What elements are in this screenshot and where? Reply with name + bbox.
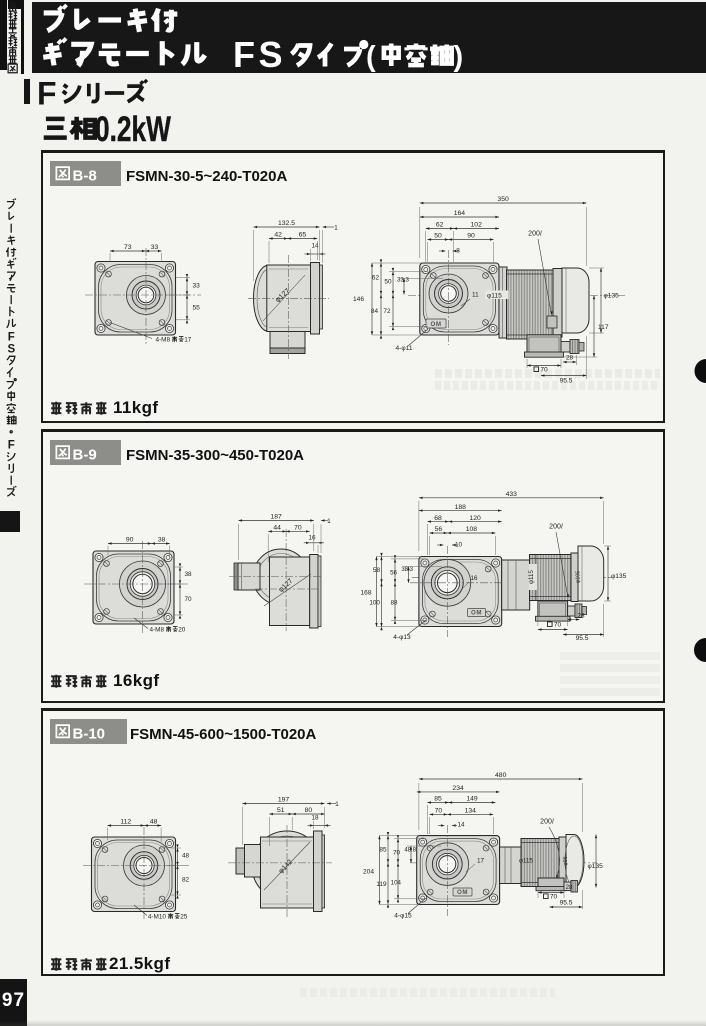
svg-text:70: 70 <box>435 808 443 815</box>
svg-text:70: 70 <box>550 894 558 901</box>
svg-text:11: 11 <box>472 292 479 299</box>
svg-text:1: 1 <box>335 801 339 808</box>
svg-text:200l: 200l <box>540 818 554 826</box>
svg-text:4-M10: 4-M10 <box>148 914 167 921</box>
svg-text:84: 84 <box>371 308 379 315</box>
svg-text:17: 17 <box>184 337 192 344</box>
svg-text:28: 28 <box>566 355 574 362</box>
svg-text:φ115: φ115 <box>487 293 502 300</box>
svg-text:FSMN-35-300~450-T020A: FSMN-35-300~450-T020A <box>126 447 304 464</box>
svg-text:B-8: B-8 <box>73 168 97 185</box>
svg-text:70: 70 <box>294 525 302 532</box>
svg-text:F: F <box>8 332 15 344</box>
svg-text:197: 197 <box>278 797 290 804</box>
svg-text:F: F <box>8 440 15 452</box>
svg-text:50: 50 <box>384 279 392 286</box>
svg-text:51: 51 <box>277 807 285 814</box>
svg-text:70: 70 <box>540 367 548 374</box>
svg-text:70: 70 <box>185 596 193 603</box>
svg-text:4-φ15: 4-φ15 <box>394 913 412 920</box>
svg-text:FSMN-45-600~1500-T020A: FSMN-45-600~1500-T020A <box>130 726 317 743</box>
svg-text:38: 38 <box>185 571 193 578</box>
svg-text:14: 14 <box>311 243 319 250</box>
svg-text:100: 100 <box>369 600 380 607</box>
svg-text:132.5: 132.5 <box>278 220 295 227</box>
svg-text:112: 112 <box>120 819 131 826</box>
svg-text:350: 350 <box>497 196 509 203</box>
svg-text:28: 28 <box>566 885 573 891</box>
svg-text:82: 82 <box>182 877 190 884</box>
svg-text:90: 90 <box>126 537 134 544</box>
svg-text:φ135: φ135 <box>588 863 604 870</box>
svg-text:117: 117 <box>598 324 609 331</box>
svg-text:B-9: B-9 <box>73 447 97 464</box>
svg-text:433: 433 <box>506 491 518 498</box>
svg-text:200l: 200l <box>528 230 542 238</box>
svg-text:OM: OM <box>431 321 442 328</box>
svg-text:33.3: 33.3 <box>397 277 410 284</box>
svg-text:200l: 200l <box>549 523 563 531</box>
svg-text:95.5: 95.5 <box>576 635 589 642</box>
svg-text:FS: FS <box>233 34 286 75</box>
svg-text:48.8: 48.8 <box>404 848 416 854</box>
svg-text:58: 58 <box>373 567 381 574</box>
svg-text:65: 65 <box>299 232 307 239</box>
svg-text:68: 68 <box>434 515 442 522</box>
svg-text:φ135: φ135 <box>611 573 627 580</box>
svg-text:φ105: φ105 <box>576 571 582 584</box>
svg-text:204: 204 <box>363 869 374 876</box>
svg-text:102: 102 <box>471 222 483 229</box>
svg-text:149: 149 <box>466 796 478 803</box>
svg-text:88: 88 <box>391 600 398 607</box>
svg-text:85: 85 <box>379 847 387 854</box>
svg-text:25: 25 <box>180 914 188 921</box>
svg-text:4-M8: 4-M8 <box>155 337 170 344</box>
svg-text:16kgf: 16kgf <box>113 671 159 690</box>
svg-text:44: 44 <box>273 525 281 532</box>
svg-text:20: 20 <box>178 627 186 634</box>
svg-text:80: 80 <box>305 807 313 814</box>
svg-text:168: 168 <box>360 590 371 597</box>
svg-text:φ96: φ96 <box>563 856 569 866</box>
svg-text:OM: OM <box>457 889 468 896</box>
svg-text:11kgf: 11kgf <box>113 398 158 417</box>
svg-text:56: 56 <box>435 526 443 533</box>
svg-text:187: 187 <box>270 514 282 521</box>
svg-text:48: 48 <box>182 853 190 860</box>
svg-text:φ115: φ115 <box>528 570 535 584</box>
svg-text:188: 188 <box>455 504 467 511</box>
svg-text:134: 134 <box>465 808 477 815</box>
svg-text:480: 480 <box>495 772 507 779</box>
svg-text:φ115: φ115 <box>519 858 533 865</box>
svg-text:S: S <box>7 344 15 356</box>
svg-text:21.5kgf: 21.5kgf <box>109 954 170 973</box>
svg-text:φ135: φ135 <box>604 293 620 300</box>
svg-text:38: 38 <box>158 537 166 544</box>
svg-text:16: 16 <box>471 575 478 582</box>
svg-text:B-10: B-10 <box>73 726 106 743</box>
svg-text:108: 108 <box>466 526 478 533</box>
svg-text:62: 62 <box>436 222 444 229</box>
svg-text:119: 119 <box>376 881 387 888</box>
svg-text:1: 1 <box>327 518 331 525</box>
svg-text:62: 62 <box>372 275 380 282</box>
svg-text:FSMN-30-5~240-T020A: FSMN-30-5~240-T020A <box>126 168 287 185</box>
svg-text:17: 17 <box>477 858 485 865</box>
svg-text:16: 16 <box>308 535 316 542</box>
svg-text:4-φ13: 4-φ13 <box>393 634 411 641</box>
svg-text:38.3: 38.3 <box>401 567 413 573</box>
svg-text:55: 55 <box>193 305 201 312</box>
svg-text:73: 73 <box>124 244 132 251</box>
svg-text:1: 1 <box>334 225 338 232</box>
svg-text:90: 90 <box>467 233 475 240</box>
svg-text:(: ( <box>366 41 376 73</box>
svg-text:18: 18 <box>311 815 319 822</box>
svg-text:120: 120 <box>469 515 481 522</box>
svg-text:28: 28 <box>577 613 585 620</box>
svg-text:72: 72 <box>383 308 391 315</box>
svg-text:95.5: 95.5 <box>560 900 573 907</box>
svg-text:33: 33 <box>193 283 201 290</box>
svg-text:4-φ11: 4-φ11 <box>396 345 413 352</box>
svg-text:48: 48 <box>150 819 158 826</box>
svg-text:4-M8: 4-M8 <box>149 627 164 634</box>
svg-text:104: 104 <box>391 880 402 887</box>
svg-text:50: 50 <box>434 233 442 240</box>
svg-text:146: 146 <box>353 296 364 303</box>
svg-text:95.5: 95.5 <box>560 378 573 385</box>
svg-text:0.2kW: 0.2kW <box>95 109 171 149</box>
svg-text:56: 56 <box>390 570 397 577</box>
svg-text:70: 70 <box>393 850 400 857</box>
svg-text:): ) <box>454 41 464 73</box>
svg-text:F: F <box>37 76 57 112</box>
svg-text:OM: OM <box>471 609 482 616</box>
svg-text:42: 42 <box>274 232 282 239</box>
svg-text:164: 164 <box>454 210 466 217</box>
svg-text:234: 234 <box>452 785 464 792</box>
svg-text:85: 85 <box>434 796 442 803</box>
svg-text:14: 14 <box>457 822 465 829</box>
svg-text:33: 33 <box>151 244 159 251</box>
svg-text:70: 70 <box>554 622 562 629</box>
